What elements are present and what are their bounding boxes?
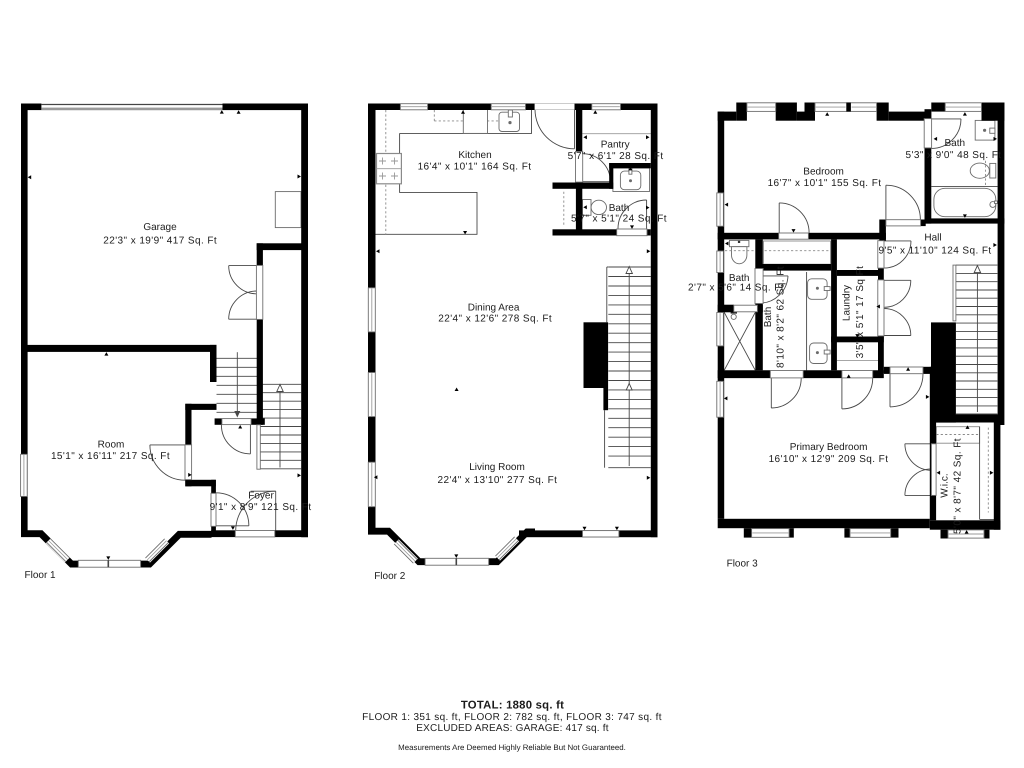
svg-text:16'10" x 12'9" 209 Sq. Ft: 16'10" x 12'9" 209 Sq. Ft [769, 454, 889, 465]
svg-text:15'1" x 16'11" 217 Sq. Ft: 15'1" x 16'11" 217 Sq. Ft [51, 451, 170, 462]
svg-text:Floor 3: Floor 3 [727, 559, 759, 570]
svg-text:5'7" x 5'1" 24 Sq. Ft: 5'7" x 5'1" 24 Sq. Ft [571, 213, 667, 224]
svg-text:22'4" x 12'6" 278 Sq. Ft: 22'4" x 12'6" 278 Sq. Ft [438, 314, 552, 325]
svg-text:Measurements Are Deemed Highly: Measurements Are Deemed Highly Reliable … [398, 743, 626, 752]
svg-text:9'5" x 11'10" 124 Sq. Ft: 9'5" x 11'10" 124 Sq. Ft [879, 245, 992, 256]
svg-text:2'7" x 5'6" 14 Sq. Ft: 2'7" x 5'6" 14 Sq. Ft [688, 283, 784, 294]
svg-text:5'0" x 8'7" 42 Sq. Ft: 5'0" x 8'7" 42 Sq. Ft [953, 438, 964, 534]
svg-text:3'5" x 5'1" 17 Sq Ft: 3'5" x 5'1" 17 Sq Ft [855, 266, 866, 359]
svg-text:Kitchen: Kitchen [458, 150, 491, 161]
svg-text:9'1" x 8'9" 121 Sq. Ft: 9'1" x 8'9" 121 Sq. Ft [210, 502, 312, 513]
svg-text:Hall: Hall [924, 233, 941, 244]
svg-text:Living Room: Living Room [469, 462, 525, 473]
svg-text:Bath: Bath [763, 307, 774, 328]
svg-text:Garage: Garage [143, 222, 177, 233]
svg-text:W.i.c.: W.i.c. [940, 473, 951, 497]
svg-text:Room: Room [98, 439, 125, 450]
svg-text:Laundry: Laundry [842, 285, 853, 321]
svg-text:Bath: Bath [945, 138, 966, 149]
svg-text:22'3" x 19'9" 417 Sq. Ft: 22'3" x 19'9" 417 Sq. Ft [103, 236, 217, 247]
svg-text:Foyer: Foyer [248, 490, 274, 501]
svg-text:TOTAL: 1880 sq. ft: TOTAL: 1880 sq. ft [461, 699, 564, 711]
svg-text:Primary Bedroom: Primary Bedroom [790, 442, 868, 453]
svg-text:8'10" x 8'2" 62 Sq. Ft: 8'10" x 8'2" 62 Sq. Ft [776, 266, 787, 368]
svg-text:Pantry: Pantry [601, 139, 630, 150]
svg-text:Bedroom: Bedroom [803, 166, 844, 177]
svg-text:5'7" x 6'1" 28 Sq. Ft: 5'7" x 6'1" 28 Sq. Ft [568, 151, 664, 162]
svg-text:Floor 2: Floor 2 [374, 571, 406, 582]
svg-text:16'4" x 10'1" 164 Sq. Ft: 16'4" x 10'1" 164 Sq. Ft [418, 162, 532, 173]
svg-text:Bath: Bath [609, 203, 630, 214]
svg-text:Dining Area: Dining Area [468, 303, 520, 314]
svg-text:Floor 1: Floor 1 [25, 570, 57, 581]
svg-text:5'3" x 9'0" 48 Sq. Ft: 5'3" x 9'0" 48 Sq. Ft [906, 150, 1002, 161]
svg-text:16'7" x 10'1" 155 Sq. Ft: 16'7" x 10'1" 155 Sq. Ft [768, 178, 882, 189]
svg-text:FLOOR 1: 351 sq. ft, FLOOR 2:: FLOOR 1: 351 sq. ft, FLOOR 2: 782 sq. ft… [362, 712, 662, 723]
svg-text:EXCLUDED AREAS: GARAGE: 417 sq: EXCLUDED AREAS: GARAGE: 417 sq. ft [416, 723, 608, 734]
svg-text:22'4" x 13'10" 277 Sq. Ft: 22'4" x 13'10" 277 Sq. Ft [437, 475, 557, 486]
